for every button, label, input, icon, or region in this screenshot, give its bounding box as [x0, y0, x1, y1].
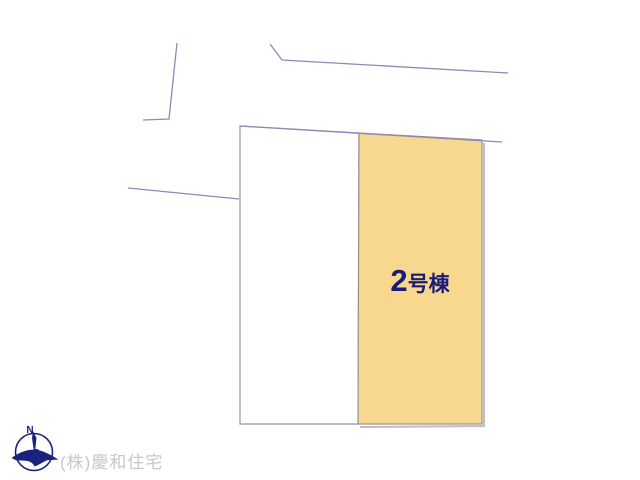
company-watermark: (株)慶和住宅	[60, 453, 163, 472]
compass: N	[12, 425, 59, 471]
site-plan-svg: 2号棟 N (株)慶和住宅	[0, 0, 640, 480]
road-line-upper-right	[270, 44, 508, 73]
plan-canvas: 2号棟 N (株)慶和住宅	[0, 0, 640, 480]
road-line-upper-left	[143, 43, 177, 120]
road-line-left	[128, 188, 239, 199]
lot-2-number: 2	[390, 263, 407, 298]
north-arrow-icon	[12, 449, 59, 466]
lot-2-suffix: 号棟	[408, 272, 451, 296]
lot-parcel-adjacent	[240, 126, 359, 424]
